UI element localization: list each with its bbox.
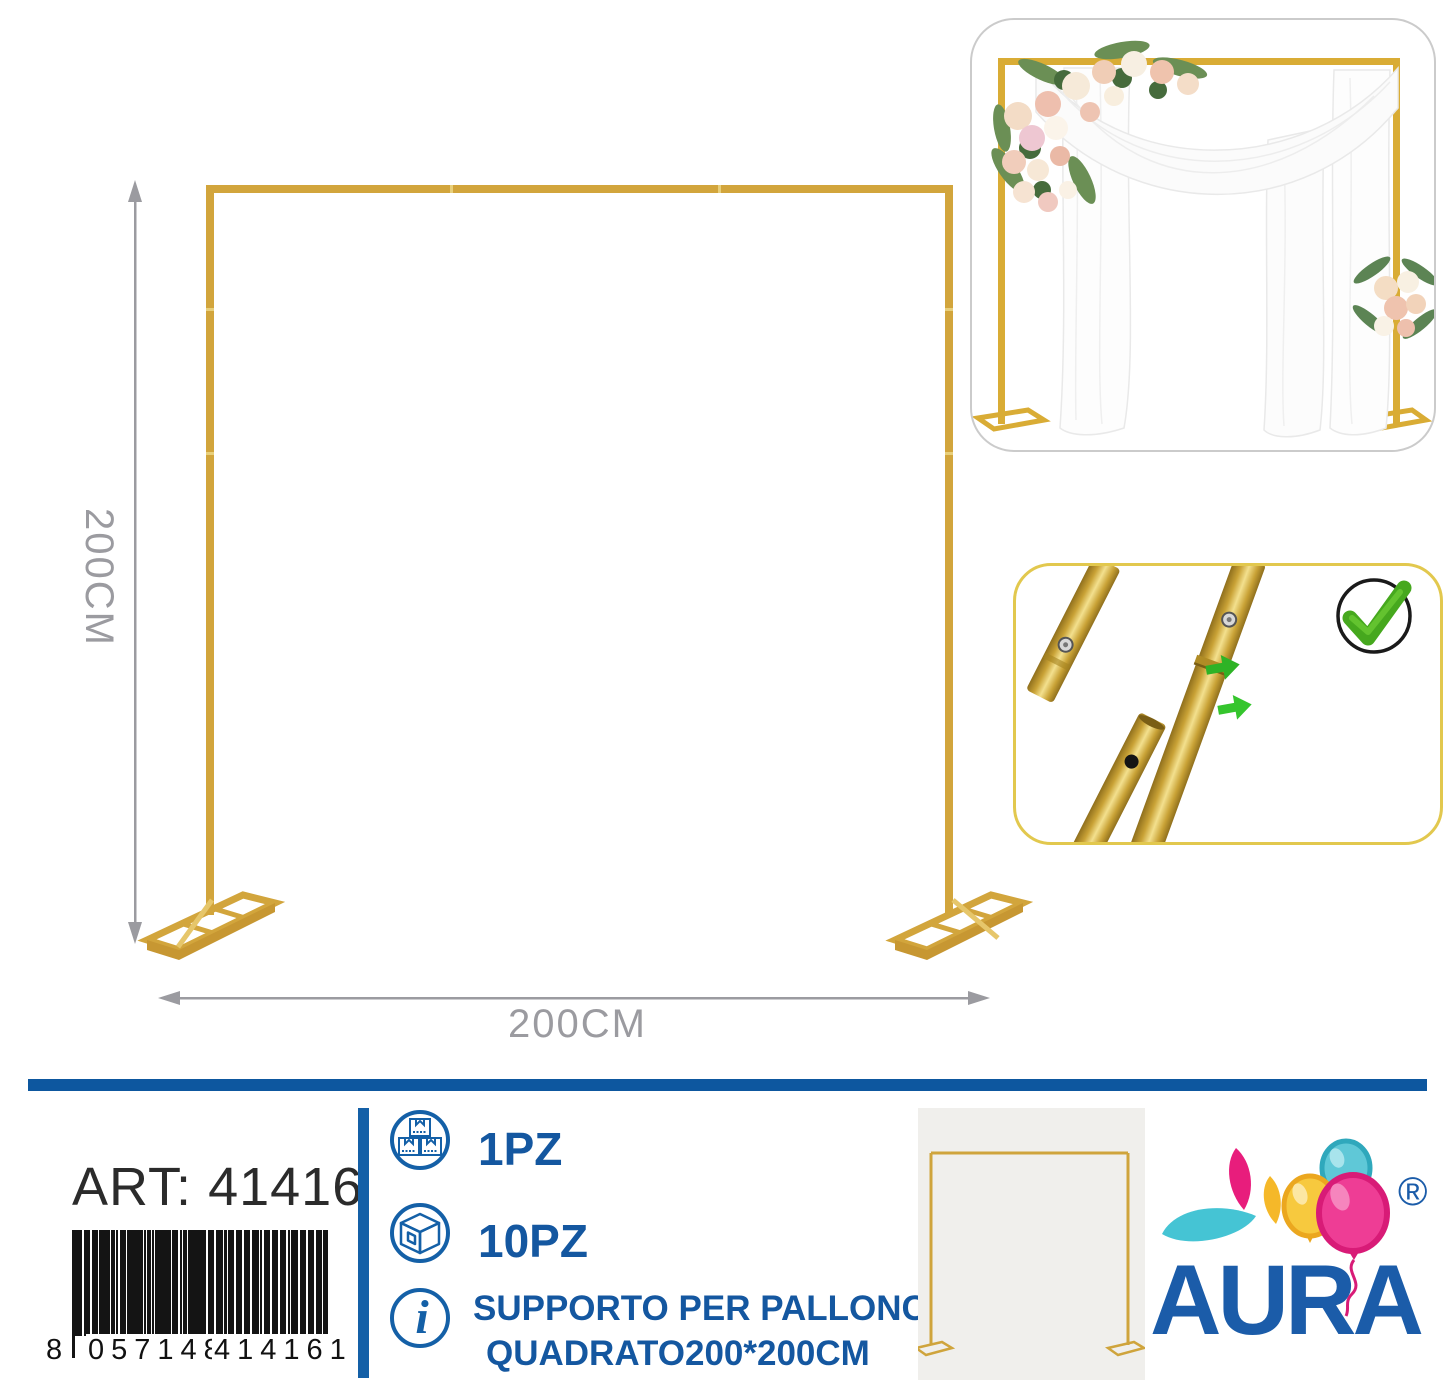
- teal-splash: [1162, 1208, 1256, 1241]
- product-description-line2: QUADRATO200*200CM: [486, 1334, 870, 1374]
- ean-barcode: 8 057148 414161: [60, 1230, 330, 1370]
- stand-frame: [206, 185, 953, 915]
- width-dimension-label: 200CM: [508, 1002, 647, 1047]
- product-description-line1: SUPPORTO PER PALLONCINI: [473, 1289, 971, 1329]
- barcode-group1: 057148: [86, 1334, 229, 1367]
- product-thumbnail: [918, 1108, 1145, 1380]
- pole-connection-inset: [1013, 563, 1443, 845]
- brand-name: AURA: [1150, 1244, 1421, 1355]
- thumbnail-stand-frame: [931, 1153, 1128, 1345]
- svg-text:i: i: [415, 1291, 429, 1344]
- info-icon: i: [388, 1286, 452, 1350]
- height-arrow: [128, 180, 142, 944]
- art-value: 41416: [208, 1157, 363, 1217]
- barcode-group2: 414161: [212, 1334, 355, 1367]
- decorated-stand-photo: [970, 18, 1436, 452]
- art-label: ART:: [72, 1157, 192, 1217]
- carton-box-icon: [388, 1201, 452, 1265]
- yellow-splash: [1264, 1176, 1281, 1224]
- vertical-divider: [358, 1108, 369, 1378]
- barcode-lead: 8: [44, 1334, 64, 1367]
- approved-check-icon: [1338, 580, 1410, 652]
- product-label-sheet: 200CM 200CM: [0, 0, 1445, 1385]
- registered-mark: ®: [1398, 1170, 1427, 1214]
- inner-quantity: 1PZ: [478, 1122, 562, 1176]
- right-base: [895, 895, 1023, 960]
- pink-splash: [1229, 1148, 1251, 1210]
- separator-bar: [28, 1079, 1427, 1091]
- pole-upper-piece: [1026, 566, 1121, 703]
- height-dimension-label: 200CM: [76, 508, 121, 647]
- brand-logo: AURA ®: [1150, 1110, 1445, 1385]
- left-base: [147, 895, 275, 960]
- carton-quantity: 10PZ: [478, 1214, 588, 1268]
- stacked-boxes-icon: [388, 1108, 452, 1172]
- article-number: ART: 41416: [72, 1156, 363, 1218]
- barcode-guard: [72, 1230, 75, 1358]
